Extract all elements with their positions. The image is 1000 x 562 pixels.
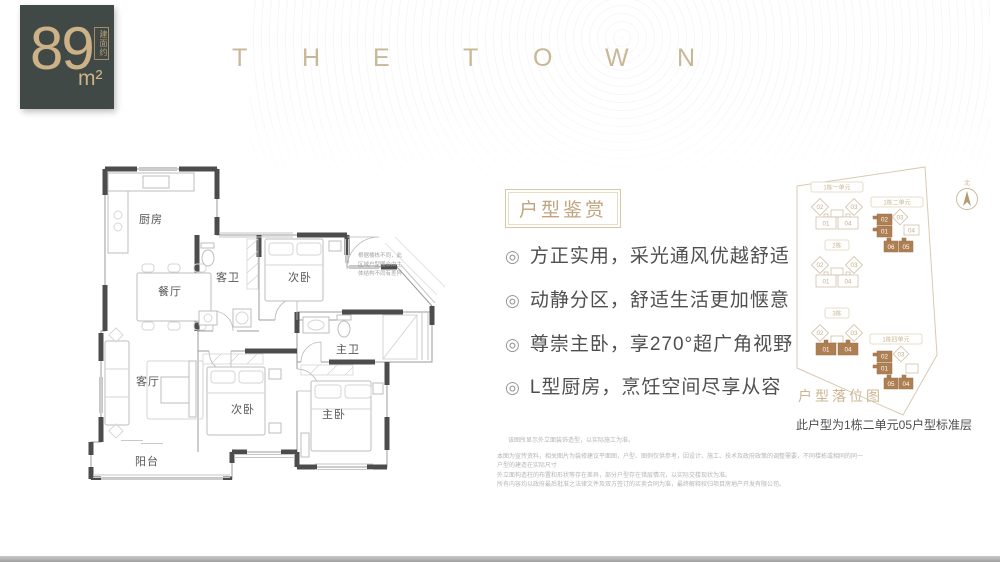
- plan-note-line: 根据楼栋不同，此: [358, 252, 428, 261]
- unit-number: 03: [851, 204, 858, 211]
- kitchen-counter: [108, 173, 194, 253]
- building-label: 1栋二单元: [883, 199, 910, 207]
- plan-note-line: 区域户型图会由主: [358, 261, 428, 270]
- feature-item: ◎L型厨房，烹饪空间尽享从容: [505, 372, 781, 399]
- feature-item: ◎尊崇主卧，享270°超广角视野: [505, 329, 793, 356]
- unit-number: 02: [817, 330, 824, 337]
- map-caption: 此户型为1栋二单元05户型标准层: [796, 416, 972, 433]
- building-5: 1栋四单元 02 01 03 05 04: [870, 334, 922, 389]
- unit-number: 04: [903, 381, 910, 388]
- unit-number: 05: [888, 381, 895, 388]
- bullet-icon: ◎: [505, 291, 521, 310]
- unit-number: 04: [908, 228, 915, 235]
- unit-number: 03: [897, 215, 904, 222]
- brand-letter: W: [605, 44, 629, 73]
- building-label: 1栋四单元: [882, 336, 909, 344]
- disclaimer-line: 本图为宣传资料，相关图片为装修建议平面图，户型、图例仅供参考，因设计、施工、技术…: [497, 453, 867, 472]
- feature-item: ◎方正实用，采光通风优越舒适: [505, 241, 790, 268]
- room-label-guest-bath: 客卫: [216, 270, 240, 284]
- brand-letter: T: [463, 44, 478, 73]
- building-1: 1栋一单元 02 03 01 04: [811, 182, 863, 229]
- disclaimer-line: 外立面构造柱的布置和形状等存在差异，部分户型存在错层情况，以实际交楼现状为准。: [497, 472, 867, 481]
- feature-text: L型厨房，烹饪空间尽享从容: [530, 377, 782, 398]
- unit-number: 03: [851, 330, 858, 337]
- bullet-icon: ◎: [505, 378, 521, 397]
- unit-number: 04: [845, 221, 852, 228]
- feature-item: ◎动静分区，舒适生活更加惬意: [505, 285, 790, 312]
- building-label: 1栋一单元: [823, 184, 850, 192]
- plan-note: 根据楼栋不同，此 区域户型图会由主 体结构不同有差异: [358, 252, 428, 278]
- unit-number: 06: [888, 244, 895, 251]
- unit-number: 01: [823, 279, 830, 286]
- bullet-icon: ◎: [505, 247, 521, 266]
- building-label: 3栋: [832, 310, 841, 318]
- building-4: 1栋二单元 02 01 03 04 06 05: [871, 197, 923, 252]
- unit-number: 02: [817, 204, 824, 211]
- room-label-kitchen: 厨房: [139, 213, 163, 226]
- room-label-living: 客厅: [136, 374, 160, 388]
- brand-letter: H: [302, 44, 320, 73]
- unit-number: 01: [881, 366, 888, 373]
- brand-letter: N: [677, 44, 695, 73]
- floor-plan: 厨房 餐厅 客卫 次卧 客厅 次卧 主卫 主卧 阳台: [85, 165, 445, 480]
- features-heading: 户型鉴赏: [505, 189, 621, 228]
- plan-note-line: 体结构不同有差异: [358, 270, 428, 279]
- compass-label: 北: [964, 179, 970, 187]
- room-label-bedroom3: 次卧: [231, 402, 255, 416]
- unit-number: 02: [881, 217, 888, 224]
- area-unit: m²: [78, 67, 103, 91]
- feature-text: 动静分区，舒适生活更加惬意: [530, 290, 790, 311]
- unit-number: 03: [898, 352, 905, 359]
- disclaimer-block: 本图为宣传资料，相关图片为装修建议平面图，户型、图例仅供参考，因设计、施工、技术…: [497, 453, 867, 490]
- bottom-edge: [0, 556, 1000, 562]
- feature-text: 方正实用，采光通风优越舒适: [530, 246, 790, 267]
- bullet-icon: ◎: [505, 335, 521, 354]
- unit-number: 02: [881, 354, 888, 361]
- building-3: 3栋 02 03 01 04: [812, 308, 863, 355]
- unit-number: 01: [823, 221, 830, 228]
- disclaimer-line: 所有内容均以政府最后批准之法律文件及双方签订的买卖合同为准，最终解释权归项目房地…: [497, 481, 867, 490]
- master-bath-fixtures: [303, 315, 417, 359]
- building-2: 2栋 02 03 01 04: [812, 240, 863, 287]
- unit-number: 02: [817, 262, 824, 269]
- room-label-dining: 餐厅: [158, 284, 182, 298]
- map-title: 户型落位图: [798, 386, 883, 406]
- unit-number: 01: [881, 229, 888, 236]
- brand-letter: O: [533, 44, 552, 73]
- room-label-balcony: 阳台: [135, 454, 159, 468]
- page: 89 建面约 m² T H E T O W N: [0, 0, 1000, 562]
- room-label-bedroom2: 次卧: [288, 270, 312, 284]
- compass-icon: 北: [957, 179, 978, 210]
- unit-number: 01: [823, 347, 830, 354]
- unit-number: 03: [851, 262, 858, 269]
- area-note: 建面约: [94, 27, 109, 60]
- disclaimer-line: 该图所显示外立面装饰造型，以实际施工为准。: [508, 435, 634, 444]
- room-label-master-bath: 主卫: [336, 343, 360, 356]
- brand-letter: E: [373, 44, 390, 73]
- building-label: 2栋: [832, 242, 841, 250]
- feature-text: 尊崇主卧，享270°超广角视野: [530, 334, 793, 355]
- unit-number: 04: [845, 279, 852, 286]
- unit-number: 04: [845, 347, 852, 354]
- room-label-master: 主卧: [322, 408, 346, 421]
- unit-number: 05: [903, 244, 910, 251]
- brand-letter: T: [232, 44, 247, 73]
- area-badge: 89 建面约 m²: [20, 5, 114, 109]
